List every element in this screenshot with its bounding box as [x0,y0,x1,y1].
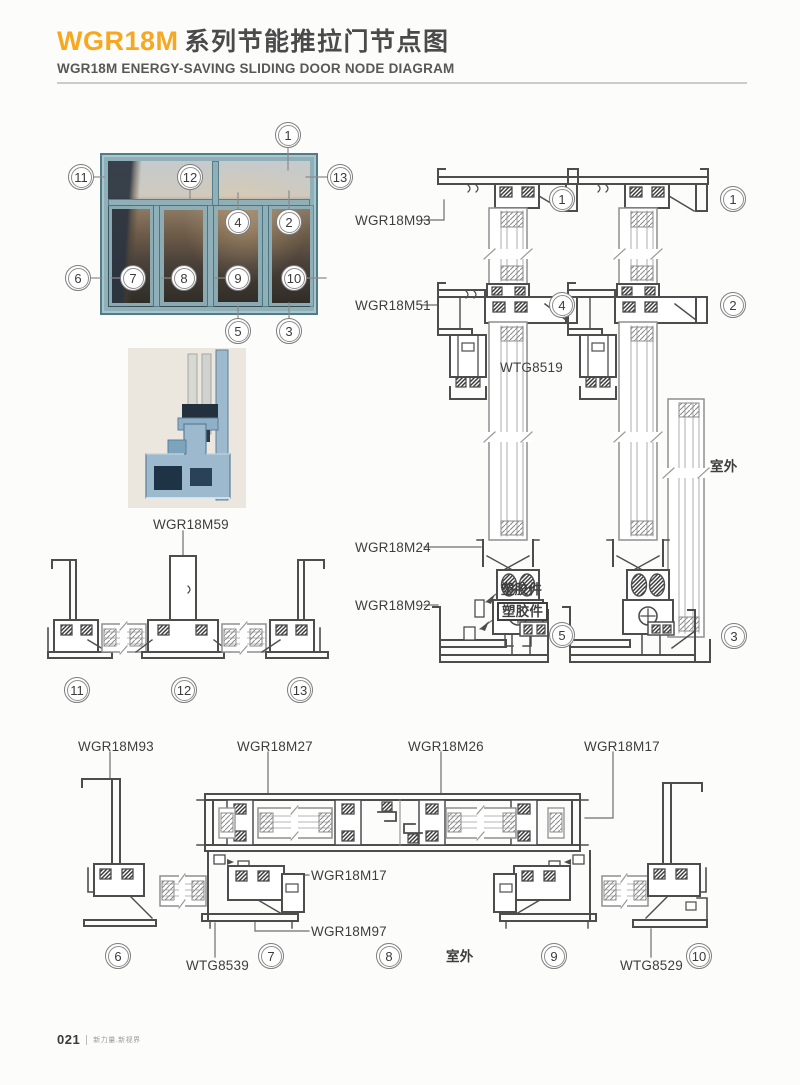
callout-13: 13 [327,164,353,190]
label-wgr18m26: WGR18M26 [408,739,484,754]
label-wgr18m93-mid: WGR18M93 [355,213,431,228]
callout-5: 5 [225,318,251,344]
section-callout-10: 10 [686,943,712,969]
section-callout-1-left: 1 [549,186,575,212]
section-callout-12: 12 [171,677,197,703]
section-callout-2: 2 [720,292,746,318]
profile-render [128,348,246,508]
label-wgr18m97: WGR18M97 [311,924,387,939]
section-callout-1-right: 1 [720,186,746,212]
section-callout-3: 3 [721,623,747,649]
section-callout-9: 9 [541,943,567,969]
callout-3: 3 [276,318,302,344]
callout-7: 7 [120,265,146,291]
label-plastic-part-1: 塑胶件 [501,578,542,598]
label-outdoor-bottom: 室外 [446,945,473,965]
mullion-1 [153,205,160,307]
fixed-panel-1 [109,206,153,306]
label-outdoor-mid: 室外 [710,455,737,475]
page-number: 021 [57,1032,80,1047]
series-code: WGR18M [57,26,179,56]
label-wgr18m59: WGR18M59 [153,517,229,532]
callout-4: 4 [225,209,251,235]
label-plastic-part-2: 塑胶件 [497,602,548,621]
label-wtg8519: WTG8519 [500,360,563,375]
sliding-sash-1 [160,206,207,306]
callout-12: 12 [177,164,203,190]
profile-photo [128,348,246,508]
label-wgr18m92: WGR18M92 [355,598,431,613]
label-wgr18m51: WGR18M51 [355,298,431,313]
footer-tagline: 新力量.新视界 [86,1035,140,1045]
catalog-page: WGR18M系列节能推拉门节点图 WGR18M ENERGY-SAVING SL… [0,0,800,1085]
callout-10: 10 [281,265,307,291]
title-cn: 系列节能推拉门节点图 [185,28,450,56]
label-wtg8539: WTG8539 [186,958,249,973]
callout-1: 1 [275,122,301,148]
section-callout-13: 13 [287,677,313,703]
callout-8: 8 [171,265,197,291]
label-wgr18m17-top: WGR18M17 [584,739,660,754]
section-callout-6: 6 [105,943,131,969]
mullion-2 [207,205,214,307]
label-wtg8529: WTG8529 [620,958,683,973]
top-mullion [212,161,219,206]
page-footer: 021 新力量.新视界 [57,1032,141,1047]
callout-11: 11 [68,164,94,190]
header-divider [57,82,747,84]
section-callout-11: 11 [64,677,90,703]
label-wgr18m17-mid: WGR18M17 [311,868,387,883]
callout-9: 9 [225,265,251,291]
label-wgr18m93-bottom: WGR18M93 [78,739,154,754]
title-en: WGR18M ENERGY-SAVING SLIDING DOOR NODE D… [57,61,747,76]
section-callout-4: 4 [549,292,575,318]
label-wgr18m24: WGR18M24 [355,540,431,555]
section-callout-8: 8 [376,943,402,969]
page-title: WGR18M系列节能推拉门节点图 [57,22,747,58]
mullion-3 [262,205,269,307]
section-callout-7: 7 [258,943,284,969]
section-callout-5: 5 [549,622,575,648]
page-header: WGR18M系列节能推拉门节点图 WGR18M ENERGY-SAVING SL… [57,22,747,84]
callout-2: 2 [276,209,302,235]
label-wgr18m27: WGR18M27 [237,739,313,754]
callout-6: 6 [65,265,91,291]
